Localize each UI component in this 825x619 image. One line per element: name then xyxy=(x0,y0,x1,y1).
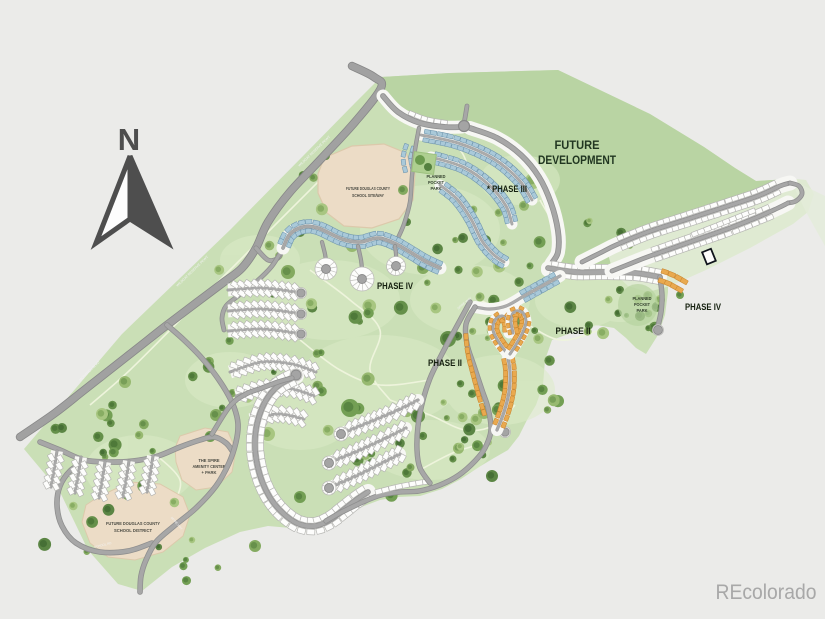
svg-text:* PHASE III: * PHASE III xyxy=(487,184,527,195)
svg-text:PLANNED: PLANNED xyxy=(633,296,652,301)
svg-text:THE SPIRE: THE SPIRE xyxy=(199,458,220,463)
svg-text:+ PARK: + PARK xyxy=(202,470,218,475)
svg-text:FUTURE: FUTURE xyxy=(555,138,600,152)
svg-text:PHASE II: PHASE II xyxy=(428,358,462,368)
svg-text:FUTURE DOUGLAS COUNTY: FUTURE DOUGLAS COUNTY xyxy=(106,521,161,527)
svg-text:PHASE IV: PHASE IV xyxy=(377,281,414,292)
svg-text:PLANNED: PLANNED xyxy=(427,174,446,179)
svg-text:AMENITY CENTER: AMENITY CENTER xyxy=(193,464,227,469)
svg-text:PHASE II: PHASE II xyxy=(556,326,591,336)
svg-text:DEVELOPMENT: DEVELOPMENT xyxy=(538,153,617,167)
svg-text:SCHOOL SITE/WAY: SCHOOL SITE/WAY xyxy=(352,193,384,198)
svg-text:POCKET: POCKET xyxy=(428,180,444,185)
svg-text:SCHOOL DISTRICT: SCHOOL DISTRICT xyxy=(114,528,152,534)
svg-text:PARK: PARK xyxy=(431,186,443,191)
svg-text:N: N xyxy=(118,122,140,157)
svg-text:PHASE IV: PHASE IV xyxy=(685,302,722,313)
svg-text:POCKET: POCKET xyxy=(634,302,650,307)
svg-text:PARK: PARK xyxy=(637,308,649,313)
svg-text:FUTURE DOUGLAS COUNTY: FUTURE DOUGLAS COUNTY xyxy=(346,186,390,191)
svg-text:REcolorado: REcolorado xyxy=(716,581,817,604)
